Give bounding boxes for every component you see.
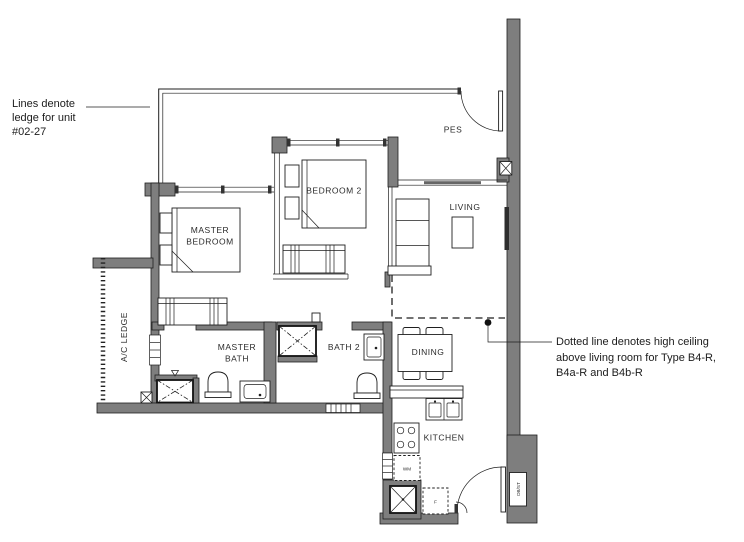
bedroom2-east-wall [388,187,392,274]
ledge-note-line1: Lines denote [12,97,76,111]
bath2-vanity [364,334,384,360]
bedroom2-wardrobe [283,245,345,273]
washing-machine: WM [394,456,420,481]
pes-door [458,88,503,132]
bedroom-divider-top [272,137,287,153]
master-toilet [205,372,231,398]
db-st-label: DB/ST [516,482,521,496]
bedroom-divider-wall [275,153,280,274]
master-bath-label-2: BATH [225,354,249,364]
bedside-table [285,197,299,219]
kitchen-counter [390,386,463,398]
master-vanity [240,381,270,402]
kitchen-sink [426,399,462,421]
ac-unit-marker-ledge [141,392,152,403]
stove [394,423,419,453]
bath2-window [326,404,360,413]
pes-door-leaf [499,91,503,131]
bedroom2-window [287,139,388,147]
bedroom2-ne-wall [388,137,398,187]
pes-door-arc [461,91,501,131]
ledge-note: Lines denote ledge for unit #02-27 [12,97,76,139]
master-bedroom: MASTER BEDROOM [158,208,240,325]
entrance-door-leaf [501,467,506,512]
fridge-label: F [434,500,437,505]
db-st-box: DB/ST [510,473,527,507]
bath2-toilet [354,373,380,399]
kitchen-window [383,453,393,479]
ledge-note-line3: #02-27 [12,125,76,139]
ceiling-note-line1: Dotted line denotes high ceiling [556,335,716,351]
bedside-table [160,213,172,233]
ledge-note-line2: ledge for unit [12,111,76,125]
dining-label: DINING [412,347,445,357]
tv-console [505,207,510,250]
bath2-shower [279,326,316,356]
fridge: F [423,488,448,514]
bedroom2-label: BEDROOM 2 [306,186,362,196]
washing-machine-label: WM [403,467,411,472]
shelter-box [390,486,416,513]
bath2-label: BATH 2 [328,342,360,352]
master-bedroom-label-1: MASTER [191,225,229,235]
ac-unit-marker-wall [500,162,512,176]
coffee-table [452,217,473,248]
bedroom2: BEDROOM 2 [283,160,366,273]
ceiling-note-line2: above living room for Type B4-R, [556,351,716,367]
living-north-window [398,180,507,185]
ceiling-note: Dotted line denotes high ceiling above l… [556,335,716,382]
ac-louvre-window [150,335,161,365]
living-room: LIVING [388,199,509,275]
bedside-table [285,165,299,187]
kitchen: WM F KITCHEN [390,386,464,514]
living-label: LIVING [450,202,481,212]
bath2-door-jamb [312,313,320,322]
bedroom2-south-wall [273,274,348,279]
master-bath-label-1: MASTER [218,342,256,352]
master-bedroom-label-2: BEDROOM [186,237,233,247]
dining-area: DINING [398,328,452,380]
nw-corner-wall [145,183,175,196]
master-wardrobe [158,298,227,325]
entrance-door [455,467,506,513]
floor-plan-svg: MASTER BEDROOM BEDROOM 2 LIVI [0,0,744,542]
leader-dot [485,319,492,326]
sofa [388,199,431,275]
master-bedroom-window [175,186,274,194]
kitchen-label: KITCHEN [424,433,465,443]
ceiling-note-line3: B4a-R and B4b-R [556,366,716,382]
bedside-table [160,245,172,265]
west-wall [151,183,159,403]
pes-label: PES [444,125,463,135]
floor-plan-canvas: MASTER BEDROOM BEDROOM 2 LIVI [0,0,744,542]
master-bath: MASTER BATH [157,342,270,403]
ac-ledge-label: A/C LEDGE [119,312,129,362]
